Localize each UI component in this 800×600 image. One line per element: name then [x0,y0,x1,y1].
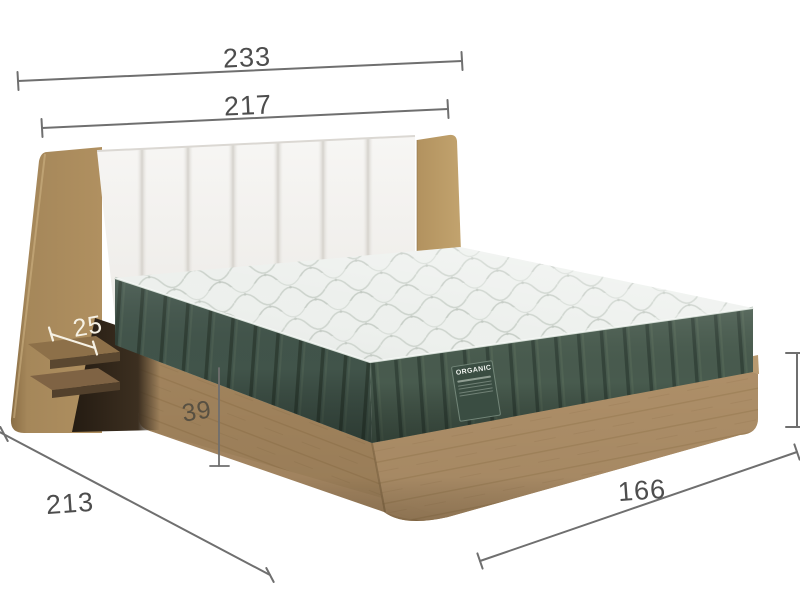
dim-label-side-length: 213 [45,487,95,521]
mattress-brand-label: ORGANIC [451,360,501,422]
dim-label-shelf-depth: 25 [71,310,105,344]
product-dimension-diagram: ORGANIC 233 217 25 39 213 166 [0,0,800,600]
dim-right-height-line [786,353,800,427]
dim-label-inner-width: 217 [223,89,272,122]
headboard-wing-right [417,135,461,256]
dim-label-base-height: 39 [180,395,214,428]
bed-illustration [0,0,800,600]
dim-label-outer-width: 233 [222,41,271,74]
dim-label-foot-width: 166 [617,474,667,508]
